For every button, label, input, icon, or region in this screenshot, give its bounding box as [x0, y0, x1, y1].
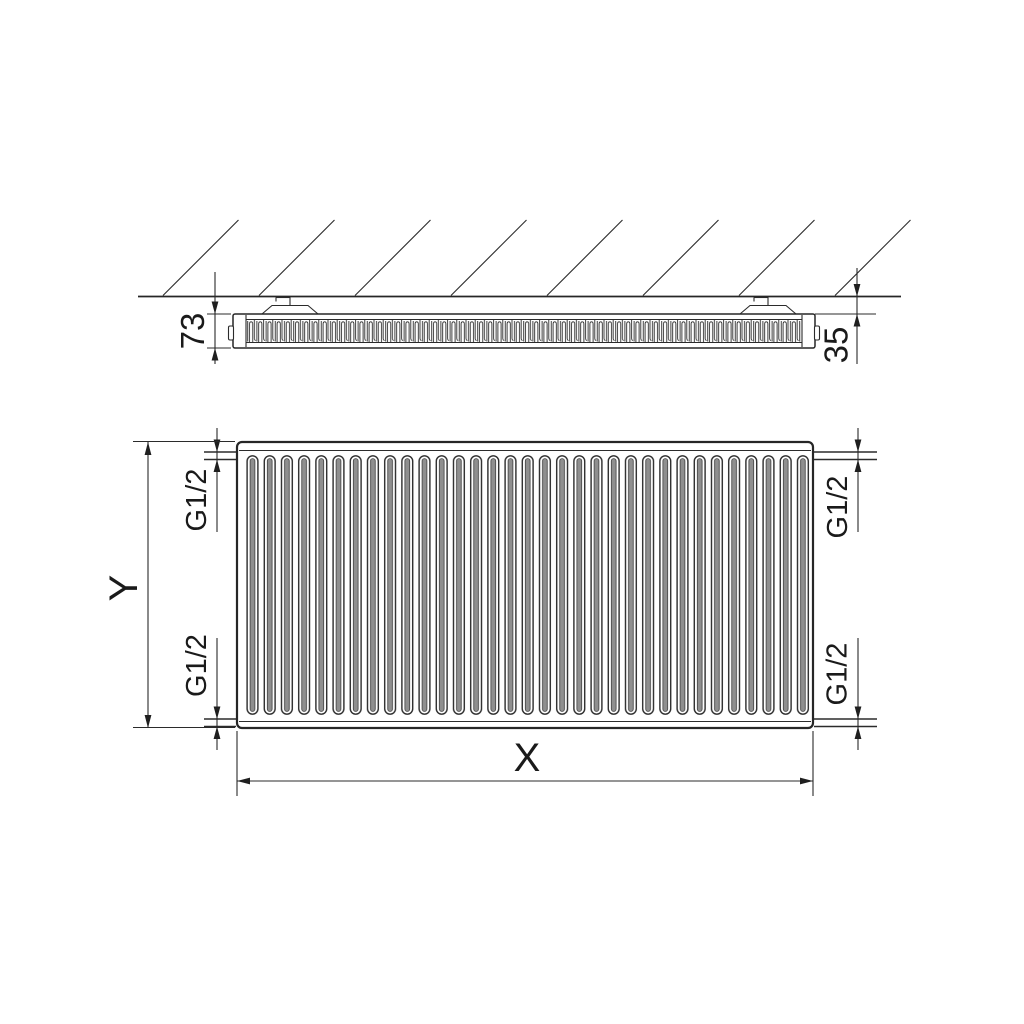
arrowhead [212, 348, 219, 361]
wall-hatch-line [547, 220, 623, 296]
connection-stub-bottom-left [204, 719, 236, 727]
dimension-height: Y [102, 442, 235, 729]
wall-hatch-line [259, 220, 335, 296]
connection-stub-bottom-right [814, 719, 877, 727]
dimension-wall-distance: 35 [815, 268, 876, 364]
arrowhead [237, 778, 250, 785]
width-dimension-label: X [514, 736, 541, 780]
connection-stub-top-right [814, 452, 877, 460]
arrowhead [855, 727, 862, 740]
end-cap-clip-left [229, 326, 234, 340]
wall-hatch-line [835, 220, 911, 296]
arrowhead [854, 284, 861, 297]
radiator-front-view [204, 442, 877, 728]
connection-label-bottom-right: G1/2 [822, 643, 854, 706]
connection-dimension-top-right: G1/2 [822, 428, 861, 538]
wall-section [138, 220, 911, 297]
arrowhead [855, 707, 862, 720]
connection-label-top-right: G1/2 [822, 476, 854, 539]
wall-hatch-line [355, 220, 431, 296]
connection-dimension-top-left: G1/2 [181, 428, 220, 532]
convector-fins [247, 320, 801, 342]
depth-dimension-label: 73 [174, 313, 211, 350]
arrowhead [854, 314, 861, 327]
drawing-canvas: 73 35 [0, 0, 1024, 1024]
mounting-bracket-right [740, 297, 796, 315]
arrowhead [212, 302, 219, 315]
wall-hatch-line [739, 220, 815, 296]
connection-stub-top-left [204, 452, 236, 460]
arrowhead [145, 442, 152, 455]
arrowhead [800, 778, 813, 785]
arrowhead [855, 440, 862, 453]
mounting-bracket-left [262, 297, 318, 315]
dimension-width: X [237, 731, 813, 796]
arrowhead [214, 727, 221, 740]
radiator-technical-drawing: 73 35 [0, 0, 1024, 1024]
wall-distance-dimension-label: 35 [818, 327, 855, 364]
wall-hatch-line [451, 220, 527, 296]
connection-label-top-left: G1/2 [181, 469, 213, 532]
connection-dimension-bottom-left: G1/2 [181, 634, 220, 750]
connection-dimension-bottom-right: G1/2 [822, 638, 862, 750]
wall-hatch-line [643, 220, 719, 296]
arrowhead [855, 460, 862, 473]
arrowhead [214, 707, 221, 720]
connection-label-bottom-left: G1/2 [181, 634, 213, 697]
radiator-top-view [229, 297, 820, 349]
arrowhead [145, 715, 152, 728]
arrowhead [214, 460, 221, 473]
front-panel-grooves [244, 455, 812, 715]
height-dimension-label: Y [102, 575, 146, 602]
dimension-depth: 73 [174, 272, 231, 364]
wall-hatch-line [163, 220, 239, 296]
